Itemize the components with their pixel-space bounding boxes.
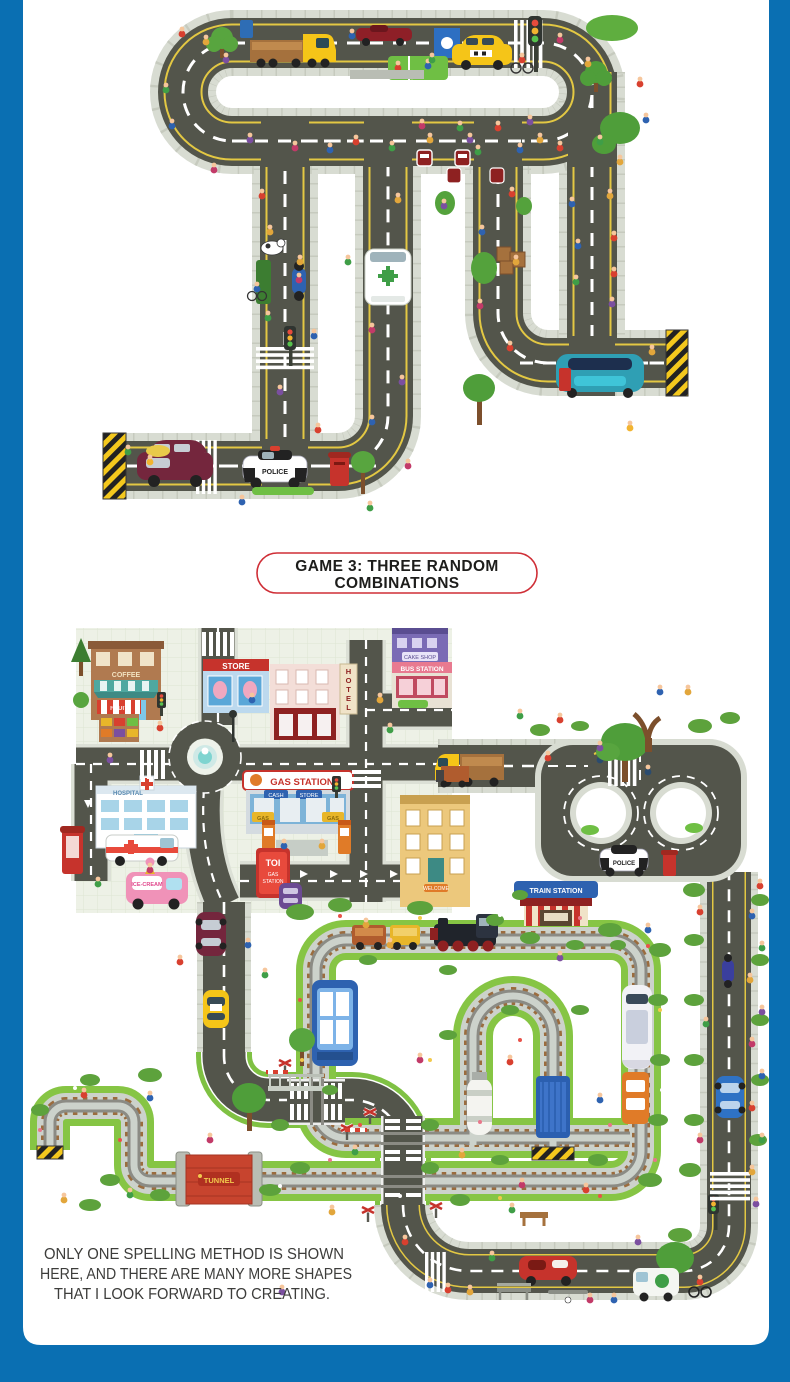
svg-text:POLICE: POLICE <box>262 469 288 476</box>
svg-text:HERE, AND THERE ARE MANY MORE: HERE, AND THERE ARE MANY MORE SHAPES <box>40 1266 352 1283</box>
svg-text:ONLY ONE SPELLING METHOD IS SH: ONLY ONE SPELLING METHOD IS SHOWN <box>44 1246 344 1263</box>
svg-text:GAS: GAS <box>268 872 279 878</box>
svg-text:STATION: STATION <box>263 879 284 885</box>
svg-text:HOSPITAL: HOSPITAL <box>113 791 143 797</box>
svg-text:BUS STATION: BUS STATION <box>400 666 443 673</box>
svg-text:THAT I LOOK FORWARD TO CREATIN: THAT I LOOK FORWARD TO CREATING. <box>54 1286 330 1303</box>
svg-text:COMBINATIONS: COMBINATIONS <box>334 575 459 592</box>
svg-text:H: H <box>346 667 351 676</box>
svg-text:COFFEE: COFFEE <box>112 672 141 679</box>
svg-text:L: L <box>346 703 351 712</box>
svg-text:FRUIT: FRUIT <box>110 706 128 712</box>
svg-text:TRAIN STATION: TRAIN STATION <box>529 888 582 895</box>
svg-text:GAS STATION: GAS STATION <box>270 777 334 788</box>
svg-text:TUNNEL: TUNNEL <box>204 1176 235 1185</box>
svg-text:POLICE: POLICE <box>613 861 635 867</box>
svg-text:WELCOME: WELCOME <box>423 886 450 892</box>
svg-text:T: T <box>346 685 351 694</box>
svg-text:CAKE SHOP: CAKE SHOP <box>404 655 436 661</box>
svg-text:TOI: TOI <box>266 858 281 868</box>
svg-text:ICE-CREAM: ICE-CREAM <box>131 882 163 888</box>
svg-text:STORE: STORE <box>222 662 250 671</box>
svg-text:GAS: GAS <box>327 816 339 822</box>
svg-text:GAME 3: THREE RANDOM: GAME 3: THREE RANDOM <box>295 558 498 575</box>
svg-text:E: E <box>346 694 351 703</box>
svg-text:O: O <box>346 676 352 685</box>
